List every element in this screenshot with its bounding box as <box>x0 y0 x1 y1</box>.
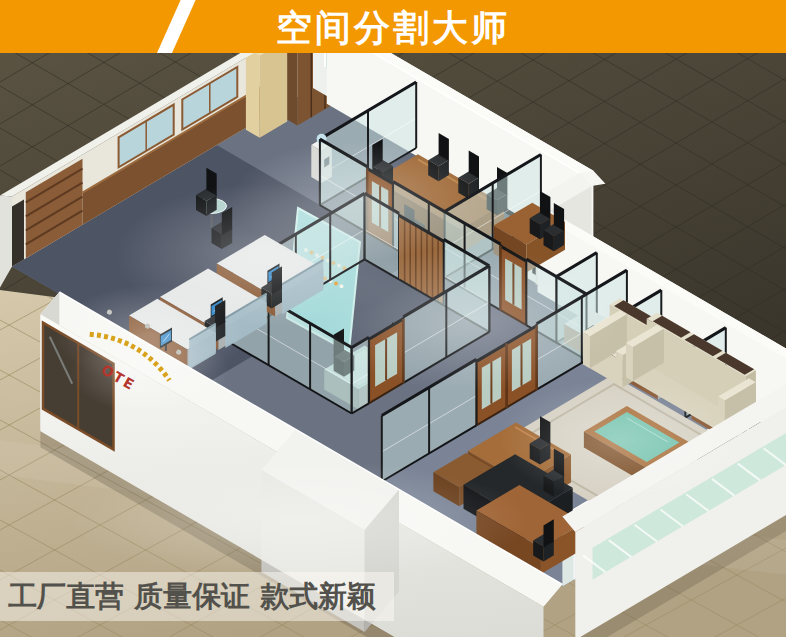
office-render-shapes <box>0 0 786 637</box>
office-render: OTE <box>0 0 786 637</box>
page: OTE 空间分割大师 工厂直营 质量保证 款式新颖 <box>0 0 786 637</box>
banner: 空间分割大师 <box>0 0 786 53</box>
slogan-strip: 工厂直营 质量保证 款式新颖 <box>0 572 394 621</box>
banner-title: 空间分割大师 <box>0 0 786 53</box>
slogan-text: 工厂直营 质量保证 款式新颖 <box>0 577 376 617</box>
